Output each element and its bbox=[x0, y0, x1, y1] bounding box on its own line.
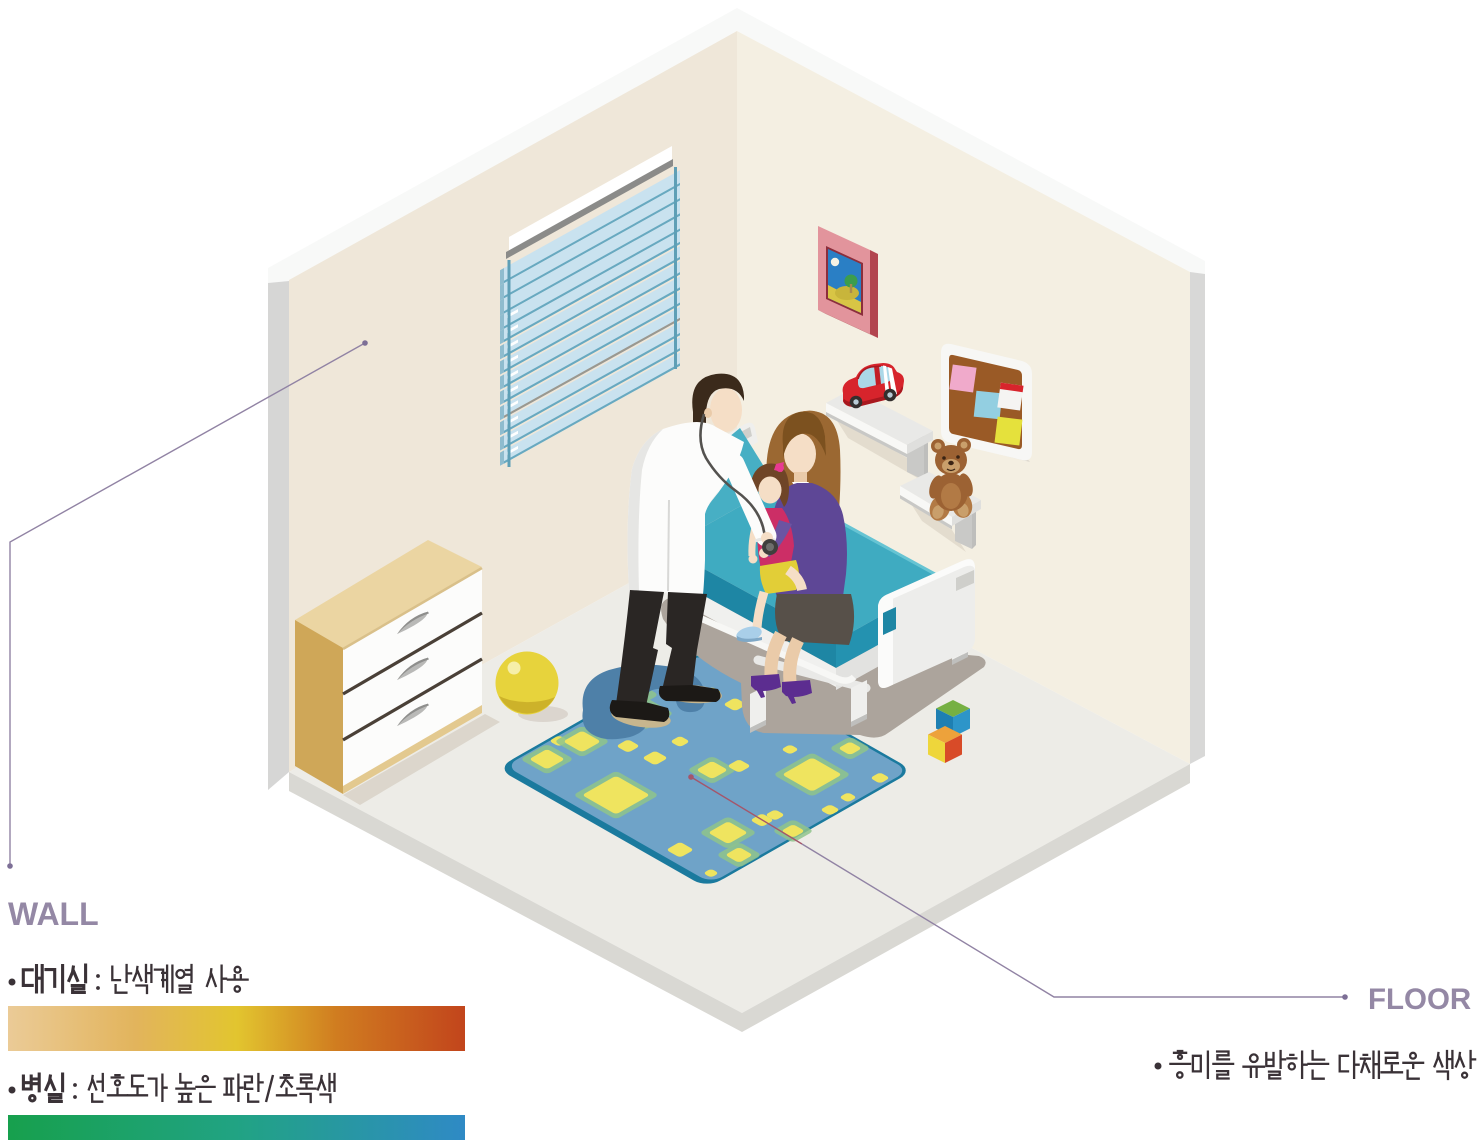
svg-text:FLOOR: FLOOR bbox=[1368, 983, 1471, 1016]
svg-text:WALL: WALL bbox=[8, 896, 99, 932]
